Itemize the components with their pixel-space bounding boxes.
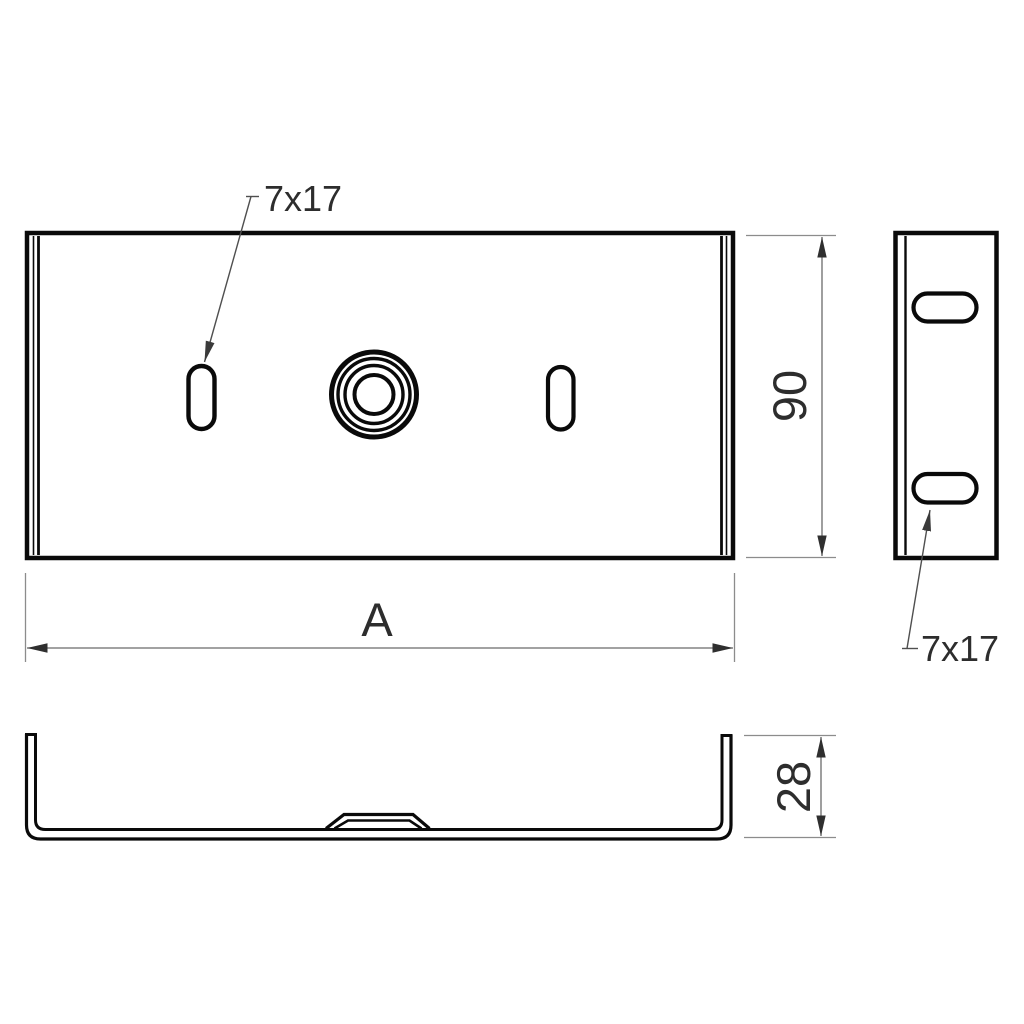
dim-height: 90 xyxy=(746,236,836,558)
dim-depth: 28 xyxy=(744,736,836,838)
technical-drawing: 90 A 28 7x17 7x17 xyxy=(0,0,1024,1024)
dim-width-label: A xyxy=(361,593,393,646)
dim-height-label: 90 xyxy=(763,370,816,422)
side-view xyxy=(896,233,997,558)
front-view-outline xyxy=(27,233,733,558)
slot-size-label-side: 7x17 xyxy=(921,628,999,669)
slot-size-label-front: 7x17 xyxy=(264,178,342,219)
side-view-outline xyxy=(896,233,997,558)
dim-width: A xyxy=(26,573,735,662)
bottom-outline-outer xyxy=(27,734,732,839)
bottom-view xyxy=(25,734,733,839)
front-view xyxy=(27,233,733,558)
dim-depth-label: 28 xyxy=(767,761,820,813)
hole-boss-inner xyxy=(335,821,422,829)
